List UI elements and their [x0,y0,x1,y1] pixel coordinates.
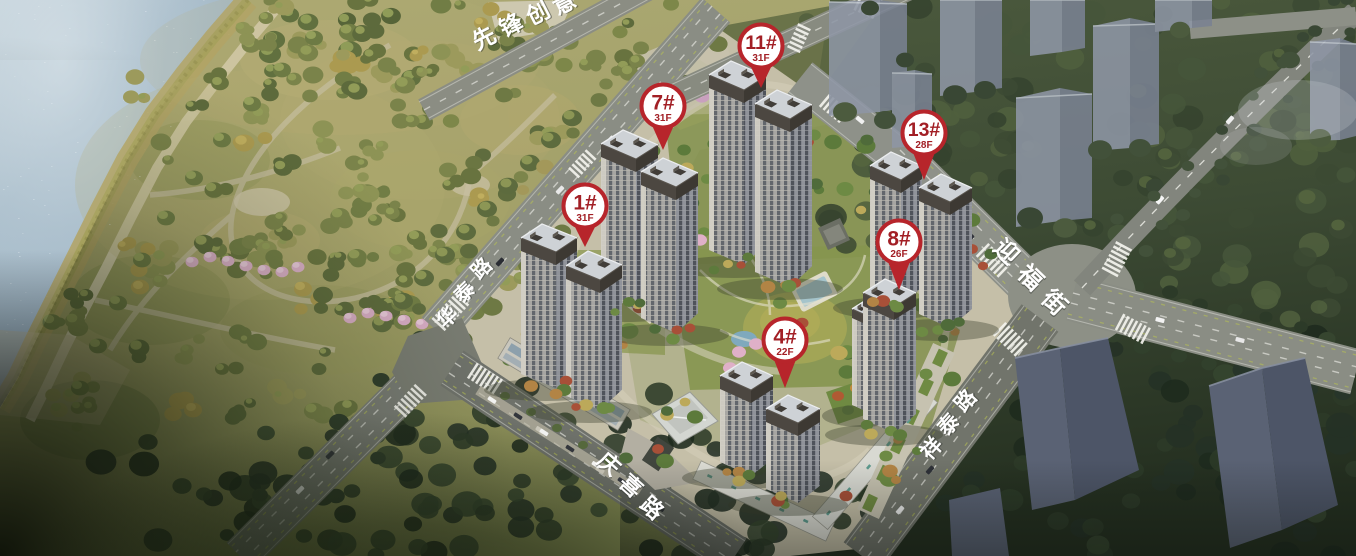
svg-text:7#: 7# [651,92,675,115]
svg-text:8#: 8# [887,228,911,251]
svg-text:11#: 11# [745,32,777,54]
svg-text:31F: 31F [752,53,769,64]
svg-text:26F: 26F [890,249,907,260]
svg-text:31F: 31F [576,213,593,224]
svg-text:22F: 22F [776,347,793,358]
svg-text:28F: 28F [915,140,932,151]
svg-text:1#: 1# [573,192,597,215]
svg-text:13#: 13# [908,119,941,141]
svg-text:31F: 31F [654,113,671,124]
svg-text:4#: 4# [773,326,797,349]
